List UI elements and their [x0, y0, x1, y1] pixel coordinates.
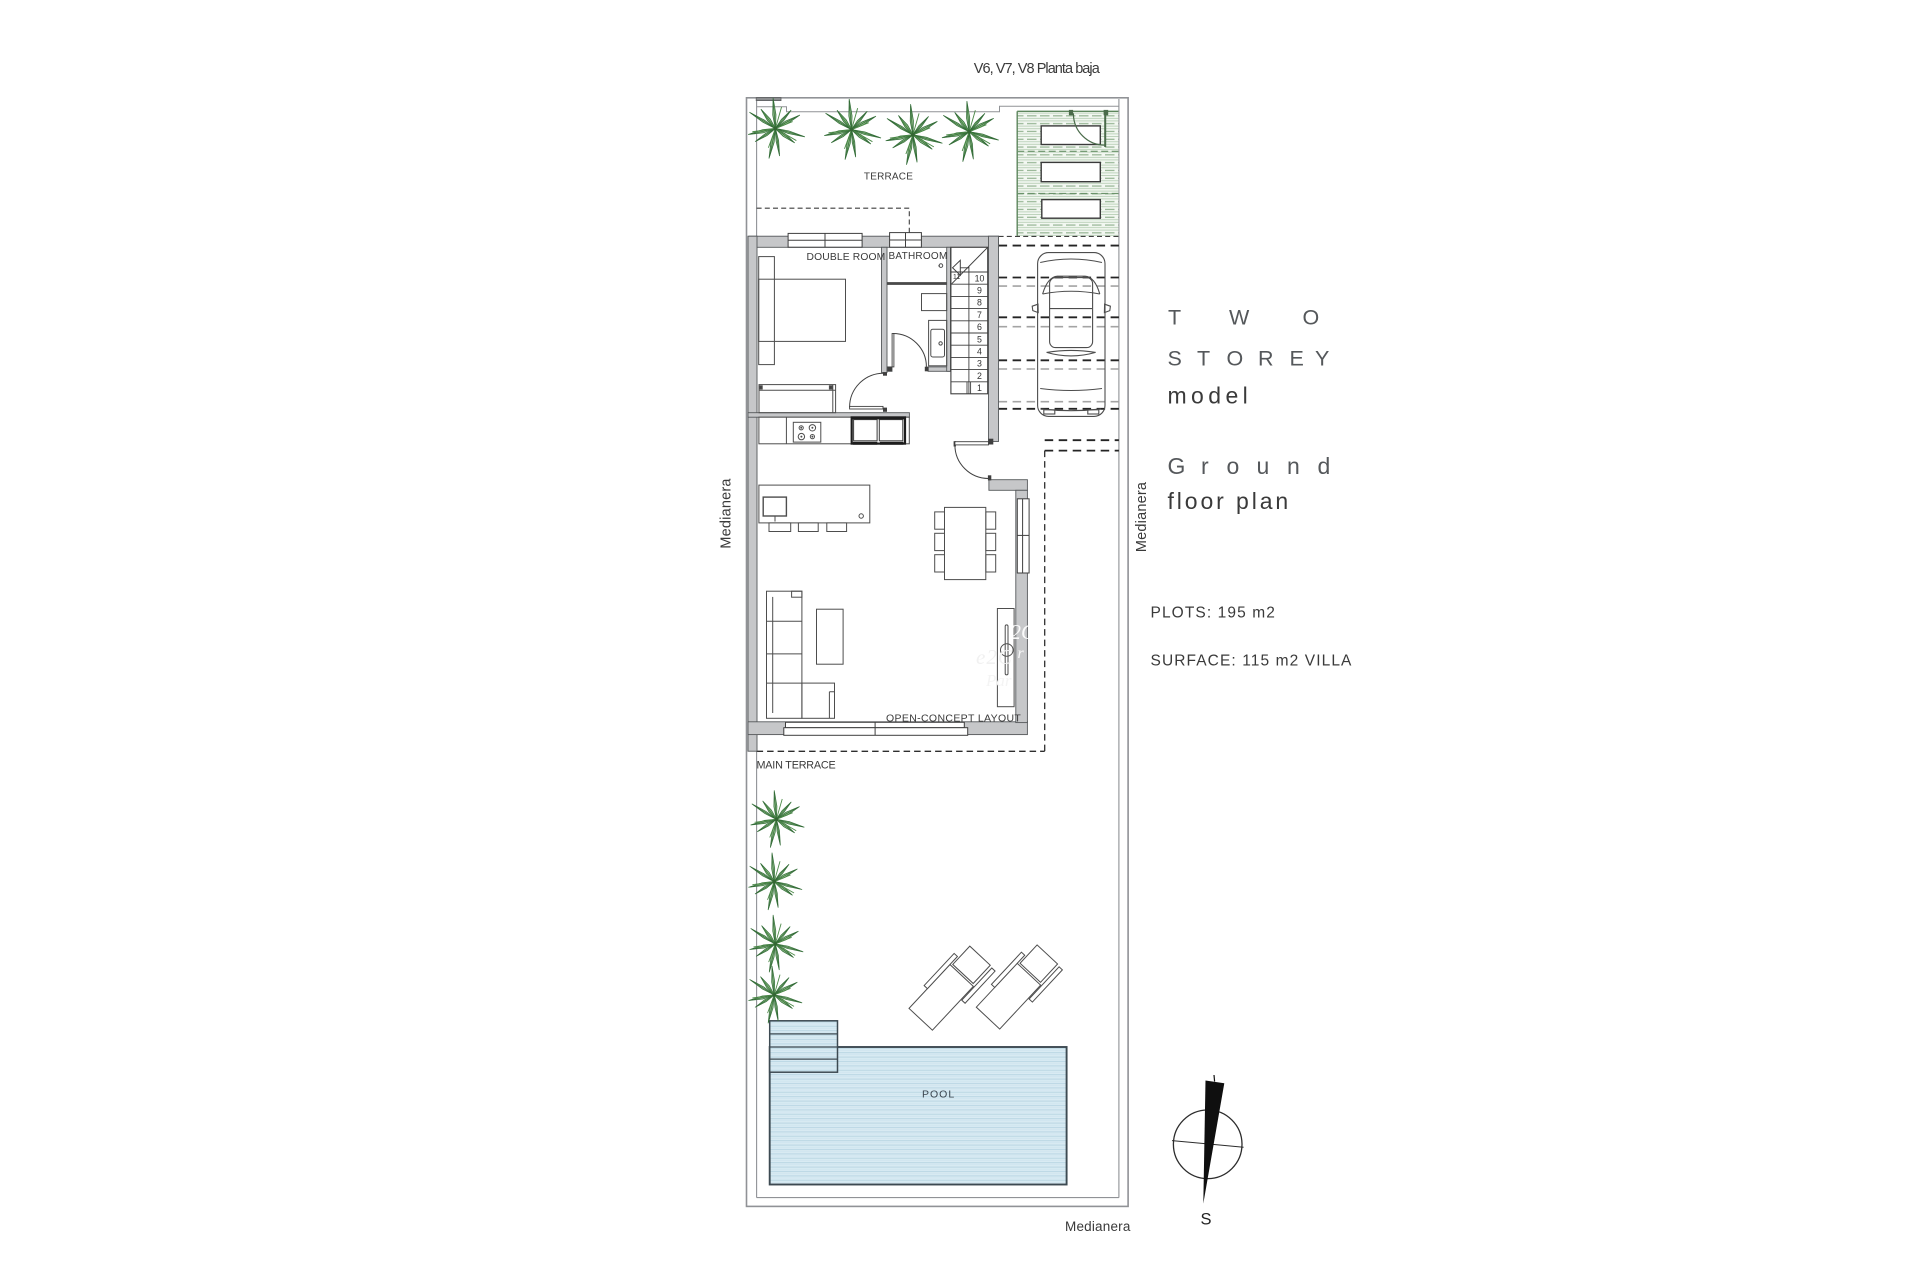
svg-text:Medianera: Medianera [719, 478, 735, 549]
svg-text:OPEN-CONCEPT LAYOUT: OPEN-CONCEPT LAYOUT [886, 713, 1021, 725]
svg-text:TERRACE: TERRACE [864, 172, 913, 183]
svg-text:11: 11 [953, 272, 960, 281]
svg-text:9: 9 [977, 286, 982, 296]
svg-text:10: 10 [975, 273, 985, 283]
svg-text:2: 2 [977, 371, 982, 381]
svg-text:2C: 2C [1011, 620, 1037, 644]
svg-text:DOUBLE ROOM: DOUBLE ROOM [807, 252, 886, 263]
svg-text:POOL: POOL [922, 1088, 955, 1100]
svg-text:4: 4 [977, 347, 982, 357]
svg-text:SURFACE: 115 m2 VILLA: SURFACE: 115 m2 VILLA [1151, 653, 1353, 670]
svg-text:model: model [1168, 383, 1253, 409]
svg-text:6: 6 [977, 322, 982, 332]
svg-text:1: 1 [977, 383, 982, 393]
svg-text:3: 3 [977, 359, 982, 369]
svg-text:V6, V7, V8 Planta baja: V6, V7, V8 Planta baja [974, 61, 1101, 77]
svg-text:e2C: e2C [976, 645, 1013, 669]
svg-text:r: r [1018, 645, 1025, 662]
svg-text:S: S [1200, 1211, 1211, 1229]
svg-text:7: 7 [977, 310, 982, 320]
svg-text:Par: Par [985, 671, 1012, 690]
svg-text:floor plan: floor plan [1168, 488, 1292, 514]
svg-text:MAIN TERRACE: MAIN TERRACE [757, 760, 836, 772]
svg-text:Medianera: Medianera [1134, 481, 1150, 552]
svg-text:PLOTS: 195 m2: PLOTS: 195 m2 [1151, 605, 1276, 622]
svg-text:5: 5 [977, 334, 982, 344]
svg-text:8: 8 [977, 298, 982, 308]
svg-text:BATHROOM: BATHROOM [889, 251, 948, 262]
svg-text:Medianera: Medianera [1065, 1219, 1131, 1234]
